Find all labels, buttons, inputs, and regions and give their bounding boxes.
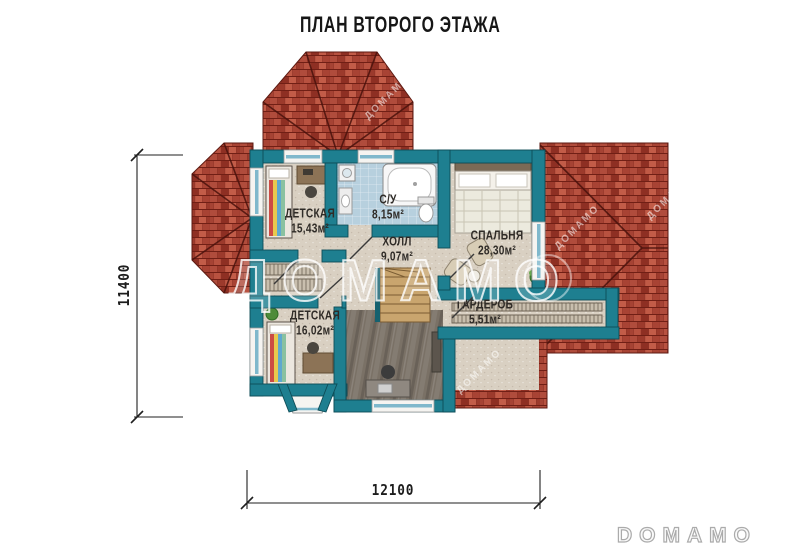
page-title: ПЛАН ВТОРОГО ЭТАЖА (0, 12, 800, 38)
room-name: ХОЛЛ (382, 233, 411, 248)
brand-logo: DOMAMO (617, 524, 757, 548)
room-label-kids1: ДЕТСКАЯ 15,43м² (285, 206, 335, 235)
dimension-width-label: 12100 (372, 481, 415, 499)
bedroom-bed (455, 163, 531, 233)
floor-plan-page: ПЛАН ВТОРОГО ЭТАЖА ДЕТСКАЯ 15,43м² С/У 8… (0, 0, 800, 558)
watermark-ring (524, 254, 572, 302)
room-area: 8,15м² (372, 207, 404, 222)
room-name: ДЕТСКАЯ (285, 205, 335, 220)
dimension-height-label: 11400 (115, 264, 133, 307)
room-area: 15,43м² (285, 221, 335, 236)
room-label-bath: С/У 8,15м² (372, 192, 404, 221)
room-name: С/У (379, 191, 396, 206)
room-name: СПАЛЬНЯ (471, 227, 524, 242)
room-area: 16,02м² (290, 323, 340, 338)
watermark-large: ДОМАМО (229, 248, 571, 315)
